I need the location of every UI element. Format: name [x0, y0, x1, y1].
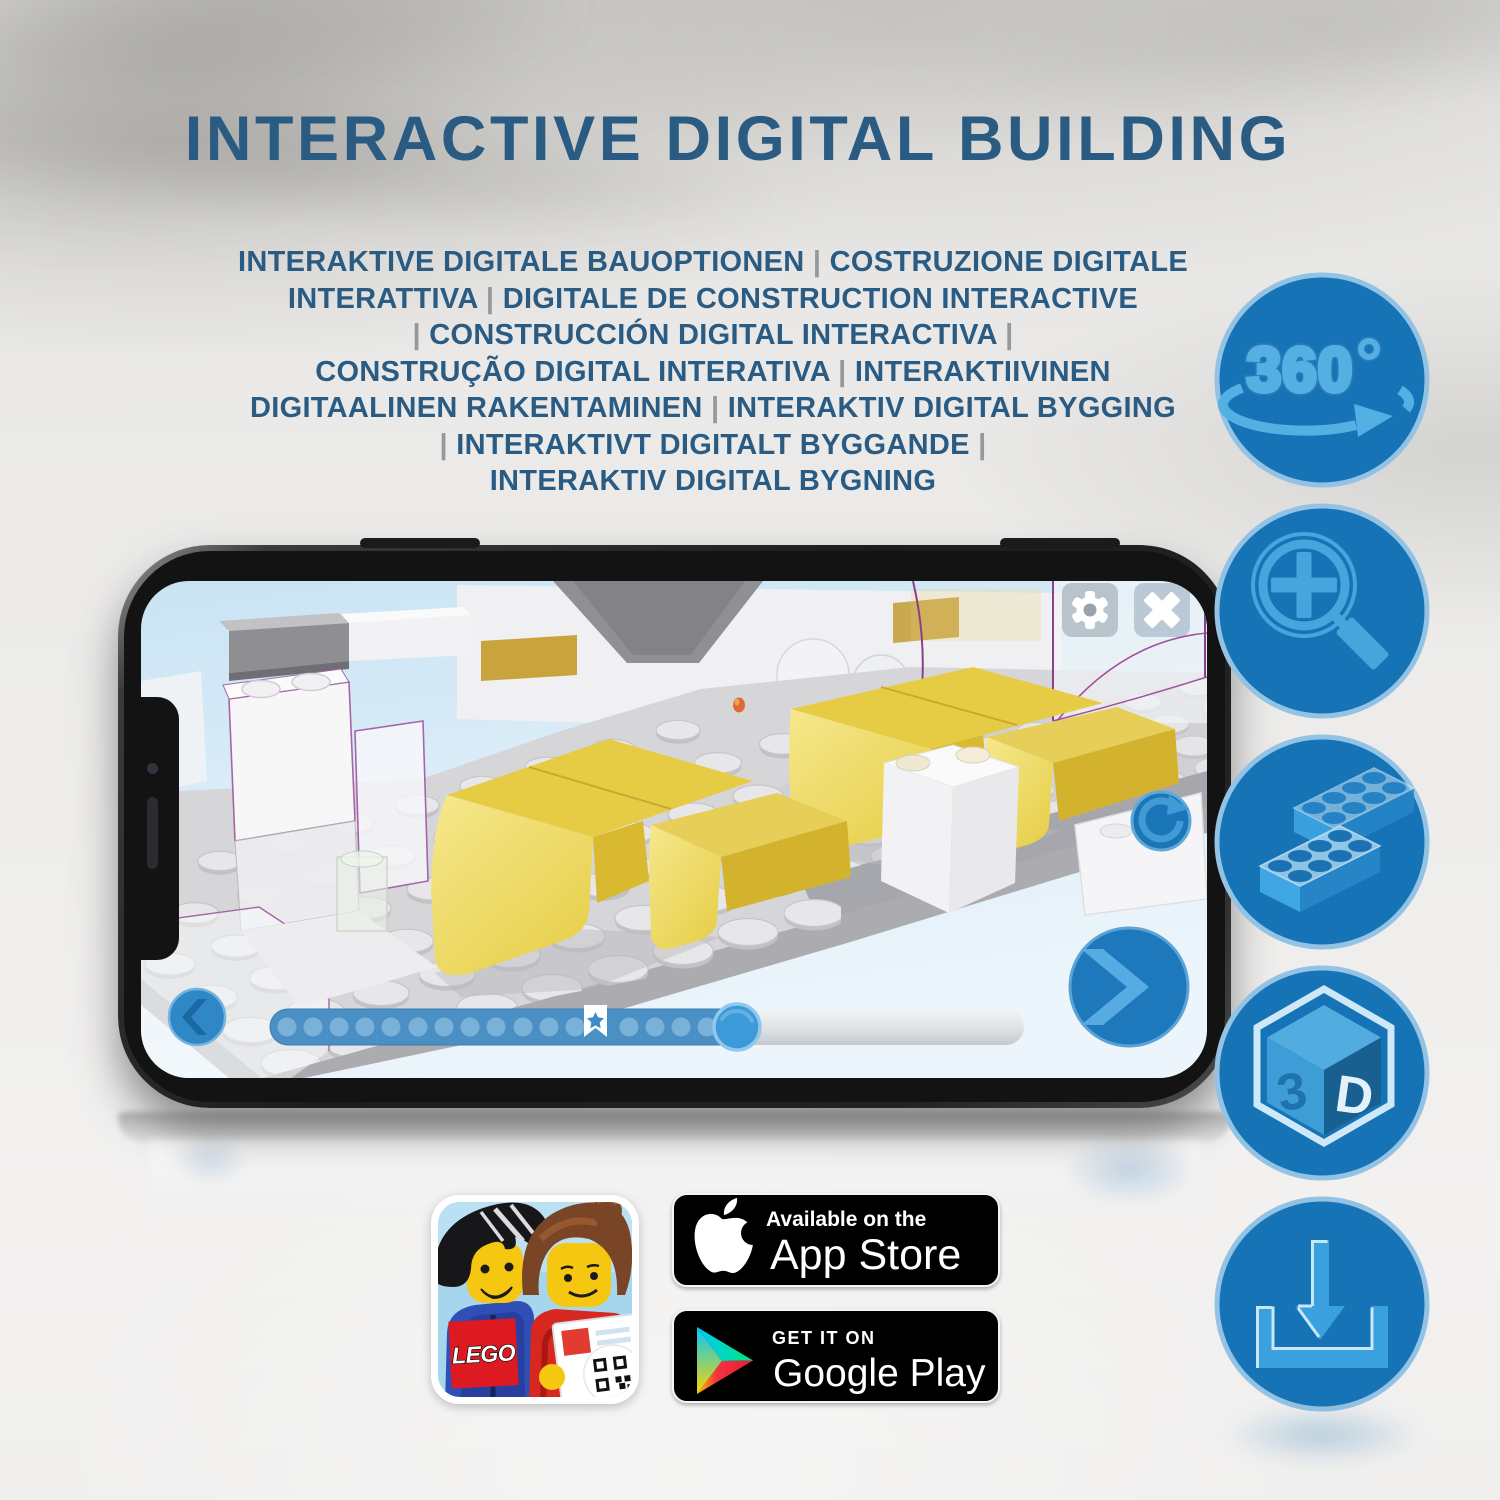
svg-text:D: D [1332, 1065, 1377, 1128]
svg-text:LEGO: LEGO [451, 1339, 516, 1368]
svg-text:Google Play: Google Play [773, 1352, 986, 1395]
svg-text:GET IT ON: GET IT ON [772, 1328, 876, 1348]
svg-text:App Store: App Store [770, 1231, 961, 1279]
svg-text:360: 360 [1247, 336, 1353, 405]
svg-text:Available on the: Available on the [766, 1208, 926, 1231]
